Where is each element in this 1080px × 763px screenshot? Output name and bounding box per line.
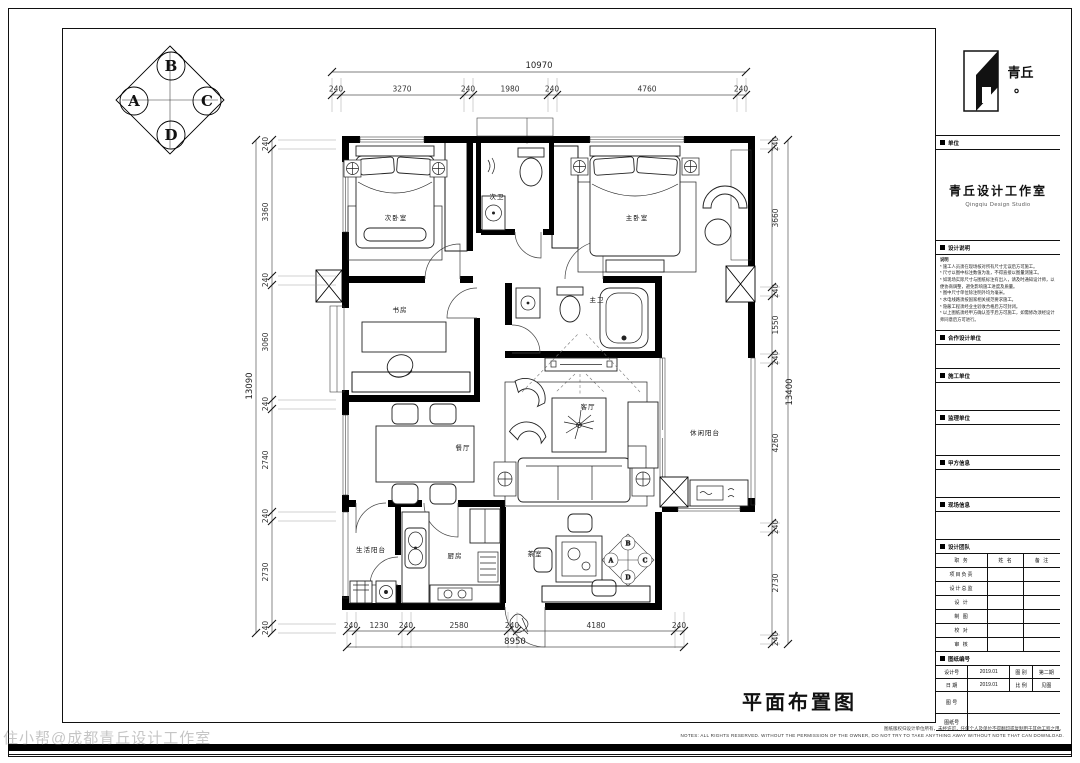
compass-a: A [127,92,140,110]
drawing-no-header: 图纸编号 [936,652,1060,666]
label-bedroom2: 次卧室 [385,213,408,222]
square-bullet-icon [940,245,945,250]
note-line: * 尺寸以图中标注数值为准，不得直接以图量测施工。 [940,270,1056,277]
section-box [936,470,1060,498]
label-bath2: 次卫 [490,192,505,201]
floor-plan: A B C D [0,0,1080,763]
label-kitchen: 厨房 [448,551,463,560]
square-bullet-icon [940,460,945,465]
svg-text:B: B [625,541,630,548]
bedroom2-furniture [344,146,447,260]
team-header: 设计团队 [936,540,1060,554]
square-bullet-icon [940,140,945,145]
svg-text:240: 240 [771,520,780,535]
section-header: 甲方信息 [936,456,1060,470]
copyright-disclaimer: 图纸版权归设计单位所有，未经许可，任何个人及单位不得翻印或复制用于其他工程之用。… [681,726,1065,740]
compass-b: B [165,57,178,75]
svg-text:240: 240 [461,85,476,94]
svg-text:240: 240 [734,85,749,94]
svg-text:4760: 4760 [637,85,656,94]
svg-text:2580: 2580 [449,621,468,630]
svg-text:1550: 1550 [771,315,780,334]
title-block: 青丘 。 单位 青丘设计工作室 Qingqiu Design Studio 设计… [935,28,1060,723]
svg-text:240: 240 [771,351,780,366]
label-master: 主卧室 [626,213,649,222]
square-bullet-icon [940,502,945,507]
svg-text:3270: 3270 [392,85,411,94]
compass-d: D [164,126,177,144]
svg-text:240: 240 [771,284,780,299]
dining-furniture [376,404,474,504]
table-row: 校 对 [936,624,1060,638]
label-balcony-service: 生活阳台 [356,545,386,554]
note-line: * 以上图纸须经甲方确认签字后方可施工，如需修改须经设计师同意后方可进行。 [940,310,1056,323]
svg-text:3660: 3660 [771,208,780,227]
section-header: 施工单位 [936,369,1060,383]
svg-text:3360: 3360 [261,202,270,221]
logo-mark [962,47,1002,117]
info-row: 日 期 2019.01 比 例 见图 [936,679,1060,692]
svg-text:1230: 1230 [369,621,388,630]
svg-text:2730: 2730 [261,562,270,581]
svg-text:8950: 8950 [504,637,526,647]
svg-text:240: 240 [505,621,520,630]
svg-text:240: 240 [261,509,270,524]
label-dining: 餐厅 [456,443,471,452]
svg-text:D: D [625,575,630,582]
svg-text:13400: 13400 [785,378,795,405]
section-box [936,383,1060,411]
label-balcony-leisure: 休闲阳台 [690,428,720,437]
svg-text:2730: 2730 [771,573,780,592]
svg-text:240: 240 [261,397,270,412]
note-line: * 水电线路须按国家相关规范要求施工。 [940,297,1056,304]
svg-text:240: 240 [771,137,780,152]
drawing-sheet: A B C D [0,0,1080,763]
square-bullet-icon [940,335,945,340]
section-header: 现场信息 [936,498,1060,512]
svg-text:240: 240 [672,621,687,630]
note-line: * 如现场实际尺寸与图纸标注有出入，请及时通知设计师，以便协商调整，避免影响施工… [940,277,1056,290]
watermark: 住小帮@成都青丘设计工作室 [3,727,211,748]
section-box [936,512,1060,540]
compass-c: C [201,92,213,110]
sheet-title: 平面布置图 [742,686,857,715]
section-header: 监理单位 [936,411,1060,425]
bottom-border-line [8,754,1072,755]
service-balcony-fixtures [350,581,396,603]
square-bullet-icon [940,656,945,661]
master-furniture [571,146,747,272]
notes-body: 说明 * 施工人员须在现场核对所有尺寸无误后方可施工。 * 尺寸以图中标注数值为… [936,255,1060,331]
bath1-fixtures [516,287,648,394]
notes-header: 设计说明 [936,241,1060,255]
label-tea: 茶室 [528,549,543,558]
table-row: 设计总监 [936,582,1060,596]
svg-text:240: 240 [261,137,270,152]
svg-text:240: 240 [344,621,359,630]
mini-compass: A B C D [602,534,654,586]
logo-text: 青丘 。 [1007,67,1033,97]
svg-text:240: 240 [329,85,344,94]
svg-text:10970: 10970 [525,61,552,71]
label-study: 书房 [393,305,408,314]
table-row: 审 核 [936,638,1060,652]
svg-text:240: 240 [771,632,780,647]
tea-room-furniture: A B C D [534,514,654,602]
balcony-features [690,480,748,506]
section-header: 合作设计单位 [936,331,1060,345]
svg-text:4260: 4260 [771,433,780,452]
section-box [936,345,1060,369]
bath2-fixtures [482,148,544,230]
note-line: * 图中尺寸单位除注明外均为毫米。 [940,290,1056,297]
label-bath1: 主卫 [590,295,605,304]
svg-text:A: A [608,558,614,565]
svg-text:1980: 1980 [500,85,519,94]
svg-text:13090: 13090 [245,372,255,399]
svg-text:2740: 2740 [261,450,270,469]
svg-text:240: 240 [399,621,414,630]
unit-header: 单位 [936,136,1060,150]
figure-number-row: 图 号 [936,692,1060,714]
info-row: 设计号 2019.01 图 别 第二期 [936,666,1060,679]
company-block: 青丘设计工作室 Qingqiu Design Studio [936,150,1060,241]
svg-text:3060: 3060 [261,332,270,351]
section-box [936,425,1060,456]
table-row: 设 计 [936,596,1060,610]
label-living: 客厅 [581,402,596,411]
signature-table: 职 务 姓 名 备 注 项目负责 设计总监 设 计 制 图 校 对 审 核 [936,554,1060,652]
svg-text:C: C [643,558,648,565]
svg-text:4180: 4180 [586,621,605,630]
table-row: 项目负责 [936,568,1060,582]
table-row: 制 图 [936,610,1060,624]
table-header-row: 职 务 姓 名 备 注 [936,554,1060,568]
company-name-en: Qingqiu Design Studio [965,202,1030,208]
studio-logo: 青丘 。 [936,28,1060,136]
company-name-cn: 青丘设计工作室 [949,182,1047,199]
svg-text:240: 240 [261,273,270,288]
compass-rose: A B C D [116,46,224,154]
square-bullet-icon [940,544,945,549]
svg-text:240: 240 [261,621,270,636]
disclaimer-en: NOTES: ALL RIGHTS RESERVED. WITHOUT THE … [681,733,1065,740]
study-furniture [352,322,470,392]
disclaimer-cn: 图纸版权归设计单位所有，未经许可，任何个人及单位不得翻印或复制用于其他工程之用。 [681,726,1065,733]
svg-text:240: 240 [545,85,560,94]
square-bullet-icon [940,373,945,378]
square-bullet-icon [940,415,945,420]
